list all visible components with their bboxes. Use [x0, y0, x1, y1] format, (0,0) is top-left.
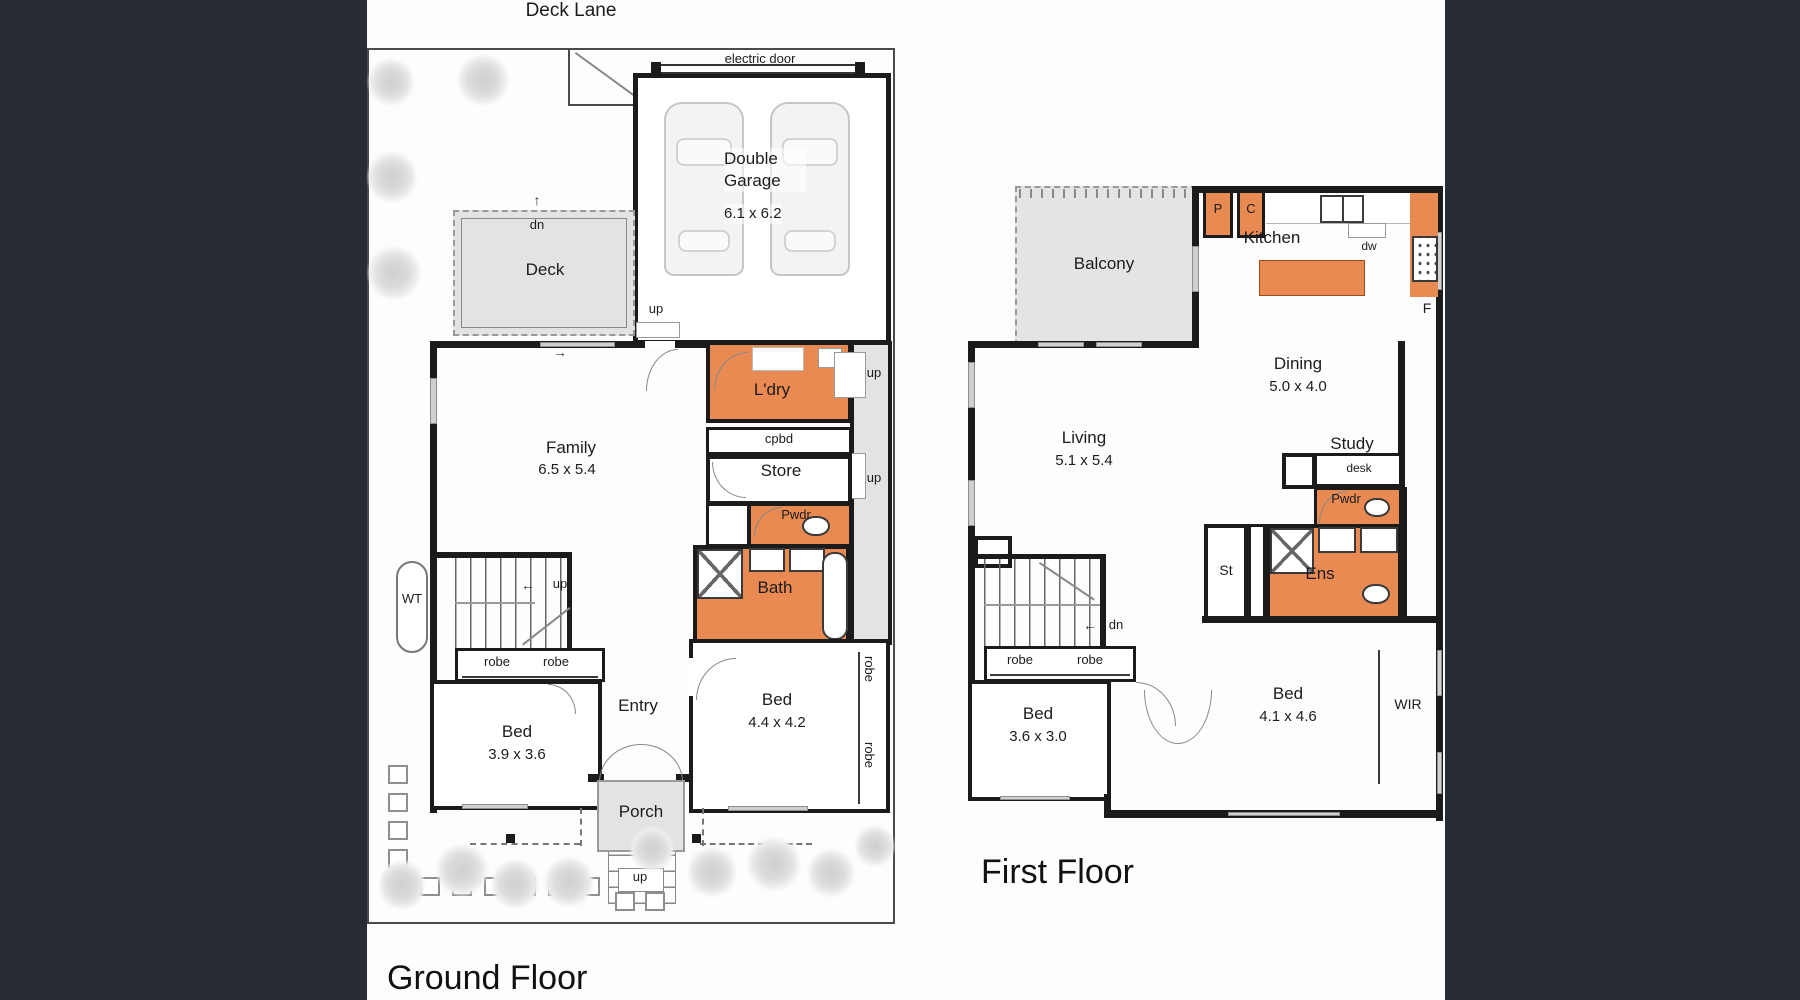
left-dark-panel [0, 0, 367, 1000]
path-square [615, 892, 635, 911]
ground-floor-title: Ground Floor [387, 956, 587, 1000]
slide-door-arrow-icon: → [553, 344, 567, 360]
pantry-label: P [1214, 202, 1223, 217]
floorplan-page: Deck Lane electric door Double Garage 6.… [0, 0, 1800, 1000]
tree [856, 824, 894, 868]
room-label-family: Family [546, 438, 596, 458]
room-label-st: St [1219, 562, 1232, 578]
door-swing-box [834, 352, 866, 398]
water-tank-label: WT [402, 592, 422, 607]
robe-rail [462, 676, 598, 678]
room-bed1 [430, 680, 602, 810]
left-arrow-icon: ← [521, 577, 535, 593]
deck-stair-label: dn [530, 218, 544, 233]
room-label-bath: Bath [758, 578, 793, 598]
room-label-powder-first: Pwdr [1331, 492, 1361, 507]
room-label-porch: Porch [619, 802, 663, 822]
desk-label: desk [1346, 462, 1371, 476]
wall [1202, 616, 1443, 623]
window [968, 362, 975, 408]
shower-icon [697, 549, 743, 599]
window [1192, 246, 1199, 292]
car-rear-window [678, 230, 730, 252]
tree [808, 848, 854, 898]
room-label-cpbd: cpbd [765, 432, 793, 447]
right-dark-panel [1445, 0, 1800, 1000]
robe-rail [990, 674, 1130, 676]
room-dims-bed2: 4.4 x 4.2 [748, 714, 806, 731]
room-label-ens: Ens [1305, 564, 1334, 584]
bathtub-icon [822, 552, 848, 640]
stair-dn-label: dn [1109, 618, 1123, 633]
left-arrow-icon: ← [1083, 617, 1097, 633]
window [430, 378, 437, 424]
room-dims-dining: 5.0 x 4.0 [1269, 378, 1327, 395]
door-up-label: up [867, 471, 881, 486]
room-label-living: Living [1062, 428, 1106, 448]
tree [368, 245, 420, 301]
door-swing-box [636, 322, 680, 338]
room-label-bed2: Bed [762, 690, 792, 710]
double-door-arc [1178, 690, 1212, 744]
tree [456, 55, 510, 105]
tree [368, 150, 416, 204]
wall [567, 552, 572, 648]
porch-up-label: up [633, 870, 647, 885]
hall-nook [706, 503, 750, 547]
window [462, 804, 528, 809]
robe-label: robe [862, 656, 877, 682]
vanity-basin-icon [749, 548, 785, 572]
path-square [388, 821, 408, 840]
window [1437, 650, 1442, 696]
fence-dashed [702, 808, 704, 846]
fence-post [506, 834, 515, 843]
door-gap [689, 658, 694, 696]
dishwasher-label: dw [1361, 240, 1376, 254]
wir-rail [1378, 650, 1380, 784]
tree [688, 846, 736, 898]
room-dims-garage: 6.1 x 6.2 [724, 204, 782, 224]
wall [1100, 554, 1106, 648]
fence-dashed [470, 843, 580, 845]
linen-closet [1248, 524, 1266, 622]
room-label-store: Store [761, 461, 802, 481]
toilet-icon [1364, 498, 1390, 517]
room-label-bed4: Bed [1273, 684, 1303, 704]
path-square [388, 765, 408, 784]
tree [748, 836, 800, 892]
tree [630, 826, 674, 872]
path-square [645, 892, 665, 911]
room-label-entry: Entry [618, 696, 658, 716]
door-up-label: up [649, 302, 663, 317]
stair-landing-line [455, 602, 535, 604]
room-dims-living: 5.1 x 5.4 [1055, 452, 1113, 469]
robe-rail [858, 652, 860, 804]
tree [436, 844, 488, 896]
door-endcap [855, 62, 865, 76]
room-label-study: Study [1330, 434, 1373, 454]
laundry-bench [752, 347, 804, 371]
dishwasher-box [1348, 223, 1386, 238]
window [1000, 796, 1070, 800]
room-label-bed3: Bed [1023, 704, 1053, 724]
sink-divider [1342, 197, 1344, 221]
room-label-garage: Double Garage [724, 148, 806, 192]
cupboard-label: C [1246, 202, 1255, 217]
tree [492, 858, 538, 910]
vanity-basin-icon [1318, 527, 1356, 553]
door-gap [645, 341, 675, 348]
room-label-bed1: Bed [502, 722, 532, 742]
room-label-kitchen: Kitchen [1244, 228, 1301, 248]
window [728, 806, 808, 811]
tree [380, 858, 424, 912]
gate-notch [568, 48, 634, 106]
robe-label: robe [1007, 653, 1033, 668]
window [1096, 342, 1142, 347]
vanity-basin-icon [1360, 527, 1398, 553]
up-arrow-icon: ↑ [534, 192, 541, 208]
room-label-wir: WIR [1394, 696, 1421, 712]
vanity-basin-icon [789, 548, 825, 572]
water-tank [396, 561, 428, 653]
study-closet [1282, 453, 1316, 489]
door-up-label: up [867, 366, 881, 381]
toilet-icon [1362, 584, 1390, 604]
wall [1104, 794, 1111, 818]
room-label-laundry: L'dry [754, 380, 790, 400]
staircase-first [984, 559, 1100, 647]
room-dims-bed3: 3.6 x 3.0 [1009, 728, 1067, 745]
electric-door-label: electric door [725, 52, 796, 67]
door-endcap [651, 62, 661, 76]
tree [368, 58, 414, 106]
balcony-hatch [1019, 189, 1193, 198]
stove-icon [1412, 236, 1438, 282]
stair-landing-line [984, 604, 1100, 606]
tree [545, 856, 593, 908]
sink-icon [1320, 195, 1364, 223]
fridge-label: F [1423, 300, 1432, 316]
room-dims-family: 6.5 x 5.4 [538, 461, 596, 478]
street-label: Deck Lane [526, 0, 617, 22]
room-label-powder-ground: Pwdr [781, 508, 811, 523]
room-label-deck: Deck [526, 260, 565, 280]
fence-dashed [580, 808, 582, 846]
double-door-arc [1144, 690, 1178, 744]
robe-label: robe [543, 655, 569, 670]
room-dims-bed4: 4.1 x 4.6 [1259, 708, 1317, 725]
window [1038, 342, 1084, 347]
kitchen-island [1259, 260, 1365, 296]
window [968, 480, 975, 526]
robe-label: robe [1077, 653, 1103, 668]
room-label-balcony: Balcony [1074, 254, 1134, 274]
path-square [388, 793, 408, 812]
robe-label: robe [484, 655, 510, 670]
window [1228, 812, 1340, 816]
robe-label: robe [862, 742, 877, 768]
first-floor-title: First Floor [981, 850, 1134, 894]
window [1437, 752, 1442, 794]
fence-post [692, 834, 701, 843]
window [540, 342, 615, 347]
room-label-dining: Dining [1274, 354, 1322, 374]
stair-up-label: up [553, 577, 567, 592]
room-dims-bed1: 3.9 x 3.6 [488, 746, 546, 763]
car-rear-window [784, 230, 836, 252]
